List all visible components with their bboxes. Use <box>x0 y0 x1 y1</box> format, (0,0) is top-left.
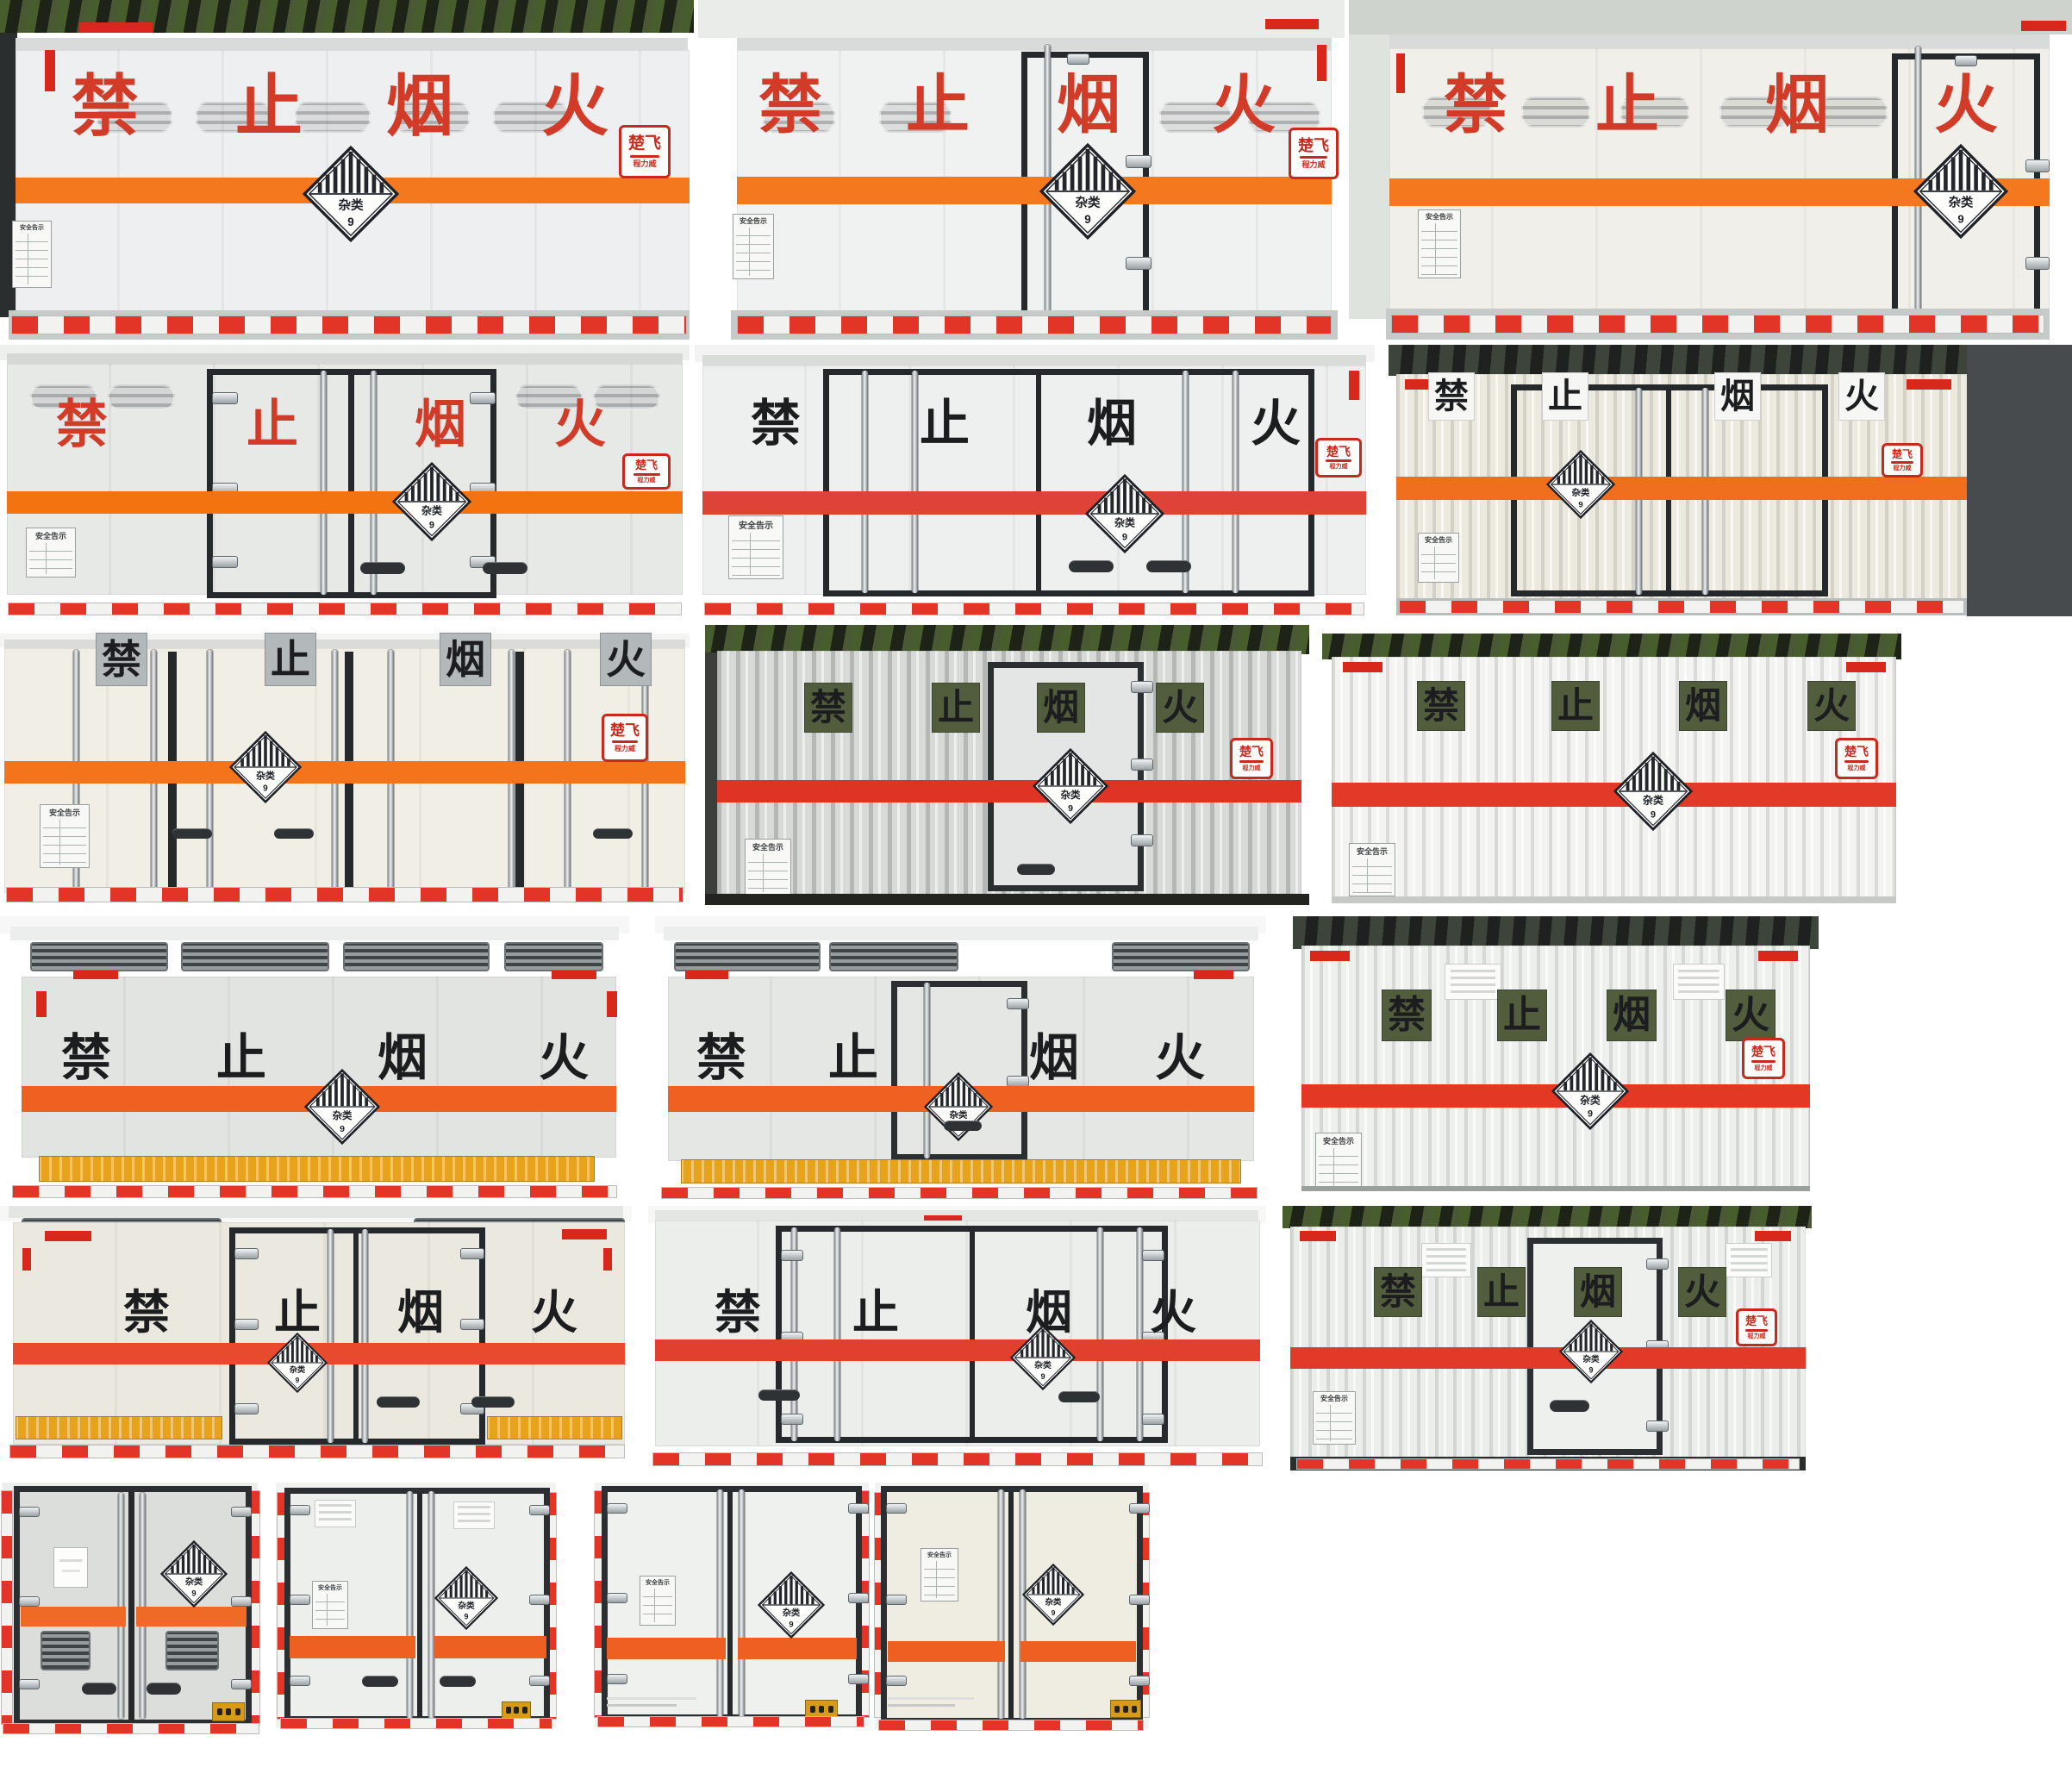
safety-plate-title: 安全告示 <box>1316 1133 1361 1146</box>
vent <box>108 384 175 410</box>
door-gap <box>353 1229 359 1443</box>
warning-char-patch: 火 <box>1156 683 1204 733</box>
red-reflector <box>22 1248 31 1271</box>
reflective-strip <box>1297 1459 1799 1469</box>
warning-char: 禁 <box>1423 688 1459 725</box>
door-handle <box>483 562 527 574</box>
warning-char: 火 <box>1162 690 1198 727</box>
vent-panel <box>1445 964 1501 1000</box>
warning-char: 火 <box>534 1033 594 1083</box>
door-lock-rod <box>739 1489 745 1717</box>
door-lock-rod <box>321 371 327 595</box>
warning-char: 禁 <box>710 1289 766 1337</box>
warning-char: 烟 <box>1685 688 1721 725</box>
safety-plate-title: 安全告示 <box>1419 534 1458 545</box>
safety-notice-plate: 安全告示 <box>1418 533 1459 583</box>
blank-label <box>53 1547 88 1588</box>
warning-char: 止 <box>241 398 303 451</box>
door-lock-rod <box>328 1229 334 1443</box>
label-dot <box>828 1706 833 1713</box>
reflective-strip <box>12 316 686 334</box>
door-hinge <box>607 1503 627 1514</box>
warning-char: 烟 <box>1580 1274 1616 1311</box>
amber-reflective-strip <box>39 1156 595 1182</box>
svg-text:杂类: 杂类 <box>1114 516 1136 529</box>
safety-plate-divider <box>1434 546 1435 579</box>
warning-char: 火 <box>1732 996 1769 1035</box>
safety-notice-plate: 安全告示 <box>12 221 52 288</box>
warning-char: 禁 <box>102 640 141 680</box>
class9-placard: 杂类9 <box>304 1069 380 1145</box>
hazmat-label <box>805 1700 838 1718</box>
class9-placard: 杂类9 <box>1559 1320 1623 1383</box>
label-dot <box>522 1707 527 1714</box>
door-hinge <box>529 1595 550 1605</box>
reflective-strip <box>1392 315 2044 333</box>
svg-text:9: 9 <box>1122 532 1127 542</box>
warning-char: 火 <box>1206 72 1283 137</box>
brand-text: 楚飞 <box>1298 138 1329 153</box>
hazard-stripe <box>1396 477 1967 500</box>
class9-placard: 杂类9 <box>1613 752 1693 831</box>
class9-placard: 杂类9 <box>1022 1564 1084 1626</box>
warning-char: 止 <box>914 398 975 449</box>
label-dot <box>1132 1706 1137 1713</box>
brand-badge: 楚飞程力威 <box>1230 738 1273 779</box>
reflective-strip <box>662 1188 1257 1198</box>
door-hinge <box>607 1674 627 1684</box>
door-hinge <box>848 1503 869 1514</box>
warning-char-patch: 禁 <box>804 683 852 733</box>
vent-panel <box>1673 964 1725 1000</box>
label-dot <box>514 1707 519 1714</box>
brand-swoosh <box>1326 459 1351 462</box>
red-reflector <box>552 971 596 979</box>
safety-plate-title: 安全告示 <box>1350 844 1395 857</box>
warning-char-patch: 禁 <box>1382 990 1432 1041</box>
warning-char: 禁 <box>51 398 113 451</box>
svg-text:杂类: 杂类 <box>458 1601 475 1611</box>
door-hinge <box>886 1503 907 1514</box>
brand-text: 楚飞 <box>1239 746 1264 758</box>
class9-placard: 杂类9 <box>229 731 302 803</box>
brand-text: 楚飞 <box>1892 449 1913 459</box>
photo-collage: 禁止烟火杂类9楚飞程力威安全告示禁止烟火杂类9楚飞程力威安全告示禁止烟火杂类9安… <box>0 0 2072 1767</box>
brand-badge: 楚飞程力威 <box>619 125 671 178</box>
svg-text:杂类: 杂类 <box>256 769 275 781</box>
warning-char-patch: 止 <box>932 683 980 733</box>
warning-char: 烟 <box>379 72 460 141</box>
safety-notice-plate: 安全告示 <box>1418 209 1461 278</box>
brand-badge: 楚飞程力威 <box>622 453 671 490</box>
vent-panel <box>1726 1243 1772 1277</box>
door-hinge <box>234 1403 259 1414</box>
brand-badge: 楚飞程力威 <box>602 714 648 762</box>
brand-text: 楚飞 <box>1745 1315 1768 1327</box>
warning-char: 火 <box>534 72 615 141</box>
door-hinge <box>231 1679 252 1689</box>
hazard-stripe <box>655 1339 1260 1361</box>
svg-text:9: 9 <box>1040 1372 1045 1381</box>
door-hinge <box>1142 1250 1164 1261</box>
warning-char: 烟 <box>409 398 471 451</box>
safety-notice-plate: 安全告示 <box>1349 843 1395 896</box>
safety-plate-divider <box>1435 223 1436 275</box>
red-reflector <box>45 1231 91 1241</box>
door-hinge <box>1131 759 1153 771</box>
warning-char: 禁 <box>691 1033 752 1083</box>
safety-plate-table <box>643 1589 672 1622</box>
door-handle <box>274 828 314 839</box>
subbrand-text: 程力威 <box>1894 465 1912 471</box>
safety-plate-divider <box>59 820 60 865</box>
red-reflector <box>1396 53 1405 93</box>
warning-char: 禁 <box>1380 1274 1416 1311</box>
red-reflector <box>562 1229 607 1239</box>
class9-placard: 杂类9 <box>1039 143 1136 240</box>
svg-text:9: 9 <box>1084 213 1090 226</box>
hazmat-label <box>1110 1700 1141 1718</box>
red-reflector <box>1317 45 1326 81</box>
warning-char: 火 <box>527 1289 583 1337</box>
reflective-strip <box>7 888 683 902</box>
louver-vent <box>829 942 958 971</box>
door-lock-rod <box>834 1227 840 1441</box>
door-hinge <box>290 1676 310 1686</box>
warning-char: 火 <box>1928 72 2005 137</box>
warning-char-patch: 烟 <box>1714 372 1761 421</box>
door-hinge <box>2025 159 2050 172</box>
svg-text:9: 9 <box>1052 1608 1056 1617</box>
brand-swoosh <box>1844 760 1868 763</box>
door-handle <box>377 1396 420 1408</box>
red-reflector <box>1846 662 1886 672</box>
label-dot <box>810 1706 815 1713</box>
brand-badge: 楚飞程力威 <box>1882 443 1923 478</box>
panel <box>16 38 688 50</box>
svg-text:杂类: 杂类 <box>338 197 364 213</box>
door-hinge <box>1955 55 1977 66</box>
safety-plate-divider <box>749 228 750 276</box>
safety-notice-plate: 安全告示 <box>26 528 76 578</box>
door-hinge <box>848 1674 869 1684</box>
panel <box>664 927 1258 940</box>
subbrand-text: 程力威 <box>1748 1333 1766 1339</box>
svg-text:杂类: 杂类 <box>783 1607 801 1618</box>
hazmat-label <box>212 1702 245 1721</box>
safety-notice-plate: 安全告示 <box>312 1581 348 1629</box>
warning-char-patch: 烟 <box>440 633 491 686</box>
warning-char-patch: 烟 <box>1679 681 1727 731</box>
class9-placard: 杂类9 <box>1546 450 1615 519</box>
red-reflector <box>73 971 118 979</box>
door-hinge <box>1067 53 1089 65</box>
door-hinge <box>460 1248 484 1259</box>
warning-char: 止 <box>1548 379 1582 415</box>
safety-plate-table <box>1352 859 1392 893</box>
label-dot <box>1114 1706 1120 1713</box>
door-hinge <box>19 1507 40 1517</box>
svg-text:9: 9 <box>191 1589 196 1598</box>
brand-text: 楚飞 <box>1326 446 1351 458</box>
svg-text:杂类: 杂类 <box>290 1364 306 1374</box>
safety-plate-table <box>29 543 72 574</box>
label-dot <box>819 1706 824 1713</box>
door-handle <box>147 1683 181 1695</box>
door-handle <box>360 562 405 574</box>
door-hinge <box>781 1250 803 1261</box>
svg-text:杂类: 杂类 <box>1075 195 1101 210</box>
door-hinge <box>1131 834 1153 846</box>
warning-char: 火 <box>1150 1033 1210 1083</box>
warning-char: 禁 <box>119 1289 175 1337</box>
brand-badge: 楚飞程力威 <box>1736 1308 1777 1346</box>
safety-plate-title: 安全告示 <box>640 1577 675 1587</box>
hazard-stripe <box>136 1607 247 1627</box>
door-hinge <box>529 1676 550 1686</box>
door-frame <box>823 369 1314 596</box>
door-hinge <box>2025 257 2050 270</box>
svg-text:9: 9 <box>340 1124 345 1134</box>
warning-char-patch: 禁 <box>1428 372 1475 421</box>
red-reflector <box>1265 19 1319 29</box>
svg-text:杂类: 杂类 <box>950 1109 968 1121</box>
amber-reflective-strip <box>487 1416 622 1439</box>
safety-plate-divider <box>28 234 28 284</box>
warning-char-patch: 火 <box>1807 681 1856 731</box>
red-reflector <box>1349 371 1359 400</box>
door-lock-rod <box>1233 371 1239 593</box>
warning-char: 止 <box>271 640 310 680</box>
class9-placard: 杂类9 <box>758 1571 825 1639</box>
safety-notice-plate: 安全告示 <box>921 1548 958 1602</box>
door-hinge <box>19 1679 40 1689</box>
door-handle <box>440 1676 476 1687</box>
reflective-strip <box>9 603 681 615</box>
warning-char-patch: 烟 <box>1037 683 1085 733</box>
red-reflector <box>685 971 728 979</box>
warning-char-patch: 火 <box>1678 1267 1726 1317</box>
hazard-stripe <box>702 491 1366 515</box>
subbrand-text: 程力威 <box>1301 161 1325 169</box>
louver-vent <box>181 942 329 971</box>
louver-vent <box>41 1631 90 1670</box>
panel <box>1967 345 2072 616</box>
warning-char-patch: 火 <box>1726 990 1776 1041</box>
reflective-strip <box>281 1719 552 1728</box>
louver-vent <box>504 942 603 971</box>
reflective-strip <box>653 1453 1262 1465</box>
safety-plate-table <box>1319 1148 1358 1186</box>
safety-plate-table <box>315 1594 345 1626</box>
door-hinge <box>212 556 238 568</box>
svg-text:9: 9 <box>1651 809 1656 820</box>
warning-char: 烟 <box>372 1033 433 1083</box>
reflective-strip <box>1400 601 1963 613</box>
class9-placard: 杂类9 <box>1551 1052 1629 1130</box>
reflective-strip <box>10 1445 624 1458</box>
red-reflector <box>1758 951 1798 961</box>
vent <box>1521 97 1590 128</box>
reflective-strip <box>13 1186 616 1197</box>
safety-plate-divider <box>327 1594 328 1626</box>
reflective-strip <box>879 1720 1143 1730</box>
door-lock-rod <box>862 371 868 593</box>
hazmat-label <box>502 1701 531 1719</box>
door-hinge <box>607 1593 627 1603</box>
warning-char: 止 <box>211 1033 271 1083</box>
warning-char: 火 <box>1245 398 1306 449</box>
red-reflector <box>603 1248 612 1271</box>
svg-text:9: 9 <box>1589 1365 1594 1374</box>
hazard-stripe <box>434 1636 546 1658</box>
svg-text:杂类: 杂类 <box>1580 1094 1601 1106</box>
svg-text:9: 9 <box>263 784 268 794</box>
warning-char: 烟 <box>1024 1033 1084 1083</box>
brand-text: 楚飞 <box>610 723 640 738</box>
safety-notice-plate: 安全告示 <box>40 804 90 868</box>
door-gap <box>1008 1491 1014 1719</box>
warning-char: 火 <box>1813 688 1850 725</box>
reflective-strip <box>3 1724 259 1733</box>
panel <box>705 894 1309 905</box>
door-hinge <box>848 1593 869 1603</box>
label-dot <box>506 1707 511 1714</box>
brand-swoosh <box>1745 1329 1768 1332</box>
door-gap <box>128 1491 134 1720</box>
class9-placard: 杂类9 <box>434 1566 498 1630</box>
panel <box>9 1206 623 1218</box>
safety-notice-plate: 安全告示 <box>1313 1391 1356 1445</box>
red-reflector <box>607 991 617 1017</box>
warning-char: 禁 <box>810 690 846 727</box>
svg-text:9: 9 <box>296 1376 300 1384</box>
door-hinge <box>1646 1258 1669 1270</box>
safety-notice-plate: 安全告示 <box>728 515 783 579</box>
warning-char: 烟 <box>446 640 485 680</box>
door-handle <box>1058 1391 1100 1402</box>
safety-plate-title: 安全告示 <box>729 516 783 531</box>
warning-char: 止 <box>228 72 309 141</box>
red-reflector <box>2021 21 2066 31</box>
class9-placard: 杂类9 <box>160 1540 228 1608</box>
door-hinge <box>1131 681 1153 693</box>
safety-plate-title: 安全告示 <box>13 222 51 232</box>
safety-notice-plate: 安全告示 <box>733 214 774 279</box>
safety-notice-plate: 安全告示 <box>745 839 791 896</box>
warning-char: 禁 <box>1388 996 1426 1035</box>
safety-plate-title: 安全告示 <box>313 1582 347 1592</box>
door-lock-rod <box>140 1493 146 1719</box>
door-handle <box>758 1389 800 1401</box>
svg-text:杂类: 杂类 <box>1643 794 1664 807</box>
background-band <box>1322 634 1901 659</box>
svg-text:杂类: 杂类 <box>1582 1354 1600 1364</box>
door-hinge <box>1129 1503 1150 1514</box>
door-handle <box>1017 864 1055 875</box>
warning-char: 禁 <box>56 1033 116 1083</box>
safety-plate-title: 安全告示 <box>27 528 75 541</box>
warning-char: 烟 <box>393 1289 449 1337</box>
safety-plate-title: 安全告示 <box>41 805 89 818</box>
svg-text:9: 9 <box>429 520 434 530</box>
class9-placard: 杂类9 <box>1033 748 1108 824</box>
safety-plate-table <box>924 1561 955 1598</box>
warning-char-patch: 火 <box>1838 372 1885 421</box>
brand-badge: 楚飞程力威 <box>1742 1038 1785 1079</box>
svg-text:9: 9 <box>465 1612 469 1620</box>
door-hinge <box>1007 998 1029 1009</box>
svg-text:杂类: 杂类 <box>333 1109 353 1121</box>
door-lock-rod <box>998 1489 1004 1719</box>
subbrand-text: 程力威 <box>1848 765 1866 771</box>
brand-text: 楚飞 <box>635 459 658 471</box>
door-lock-rod <box>428 1491 434 1719</box>
safety-plate-table <box>736 228 771 276</box>
svg-text:9: 9 <box>789 1620 793 1629</box>
warning-char: 禁 <box>65 72 146 141</box>
brand-text: 楚飞 <box>1844 746 1869 758</box>
red-reflector <box>1907 379 1951 390</box>
door-handle <box>1146 560 1191 572</box>
warning-char: 止 <box>1589 72 1666 137</box>
brand-swoosh <box>1239 760 1263 763</box>
subbrand-text: 程力威 <box>1330 464 1348 470</box>
safety-plate-title: 安全告示 <box>746 840 790 852</box>
svg-text:杂类: 杂类 <box>185 1576 203 1587</box>
warning-char-patch: 止 <box>1477 1267 1526 1317</box>
door-handle <box>944 1121 982 1131</box>
safety-plate-title: 安全告示 <box>1314 1392 1355 1403</box>
door-hinge <box>470 392 496 404</box>
warning-char: 禁 <box>1438 72 1514 137</box>
svg-text:9: 9 <box>1578 500 1582 509</box>
red-reflector <box>1343 662 1382 672</box>
panel <box>1389 34 2050 48</box>
hazard-stripe <box>7 491 683 514</box>
brand-swoosh <box>1891 461 1913 464</box>
hazard-stripe <box>888 1641 1005 1662</box>
svg-text:9: 9 <box>1957 212 1963 225</box>
door-hinge <box>234 1319 259 1330</box>
subbrand-text: 程力威 <box>1243 765 1261 771</box>
vent-panel <box>453 1502 495 1529</box>
warning-char: 止 <box>1557 688 1594 725</box>
warning-char: 烟 <box>1613 996 1651 1035</box>
amber-reflective-strip <box>681 1159 1241 1183</box>
panel <box>702 355 1366 365</box>
brand-text: 楚飞 <box>1751 1046 1776 1058</box>
warning-char: 火 <box>1844 379 1879 415</box>
panel <box>1332 896 1896 903</box>
louver-vent <box>30 942 168 971</box>
safety-plate-table <box>43 820 86 865</box>
safety-plate-divider <box>750 533 751 576</box>
brand-badge: 楚飞程力威 <box>1835 738 1878 779</box>
class9-placard: 杂类9 <box>267 1333 328 1393</box>
warning-char: 止 <box>1503 996 1541 1035</box>
red-reflector <box>1310 951 1350 961</box>
warning-char: 止 <box>848 1289 904 1337</box>
class9-placard: 杂类9 <box>303 146 399 242</box>
brand-swoosh <box>1751 1060 1775 1063</box>
door-handle <box>1069 560 1114 572</box>
warning-char: 止 <box>270 1289 326 1337</box>
warning-char-patch: 止 <box>1497 990 1547 1041</box>
warning-char: 烟 <box>1043 690 1079 727</box>
safety-plate-divider <box>936 1561 937 1598</box>
class9-placard: 杂类9 <box>392 462 471 541</box>
